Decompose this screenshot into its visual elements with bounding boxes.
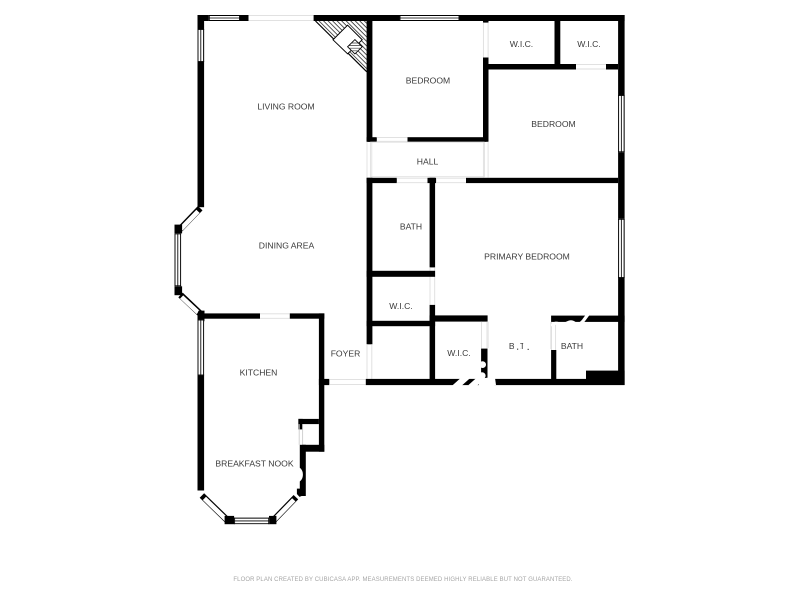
svg-text:DINING AREA: DINING AREA — [259, 241, 315, 251]
svg-text:W.I.C.: W.I.C. — [389, 301, 412, 311]
svg-text:BREAKFAST NOOK: BREAKFAST NOOK — [215, 459, 293, 469]
svg-text:FLOOR PLAN CREATED BY CUBICASA: FLOOR PLAN CREATED BY CUBICASA APP. MEAS… — [233, 577, 572, 583]
svg-text:BEDROOM: BEDROOM — [531, 119, 575, 129]
svg-text:BATH: BATH — [561, 341, 583, 351]
svg-text:KITCHEN: KITCHEN — [240, 368, 278, 378]
svg-text:LIVING ROOM: LIVING ROOM — [257, 102, 314, 112]
svg-text:BEDROOM: BEDROOM — [406, 75, 450, 85]
svg-text:W.I.C.: W.I.C. — [577, 39, 600, 49]
svg-text:FOYER: FOYER — [331, 349, 361, 359]
svg-text:BATH: BATH — [400, 222, 422, 232]
svg-text:PRIMARY BEDROOM: PRIMARY BEDROOM — [484, 252, 570, 262]
svg-text:W.I.C.: W.I.C. — [510, 39, 533, 49]
svg-text:W.I.C.: W.I.C. — [447, 348, 470, 358]
svg-text:HALL: HALL — [417, 157, 439, 167]
